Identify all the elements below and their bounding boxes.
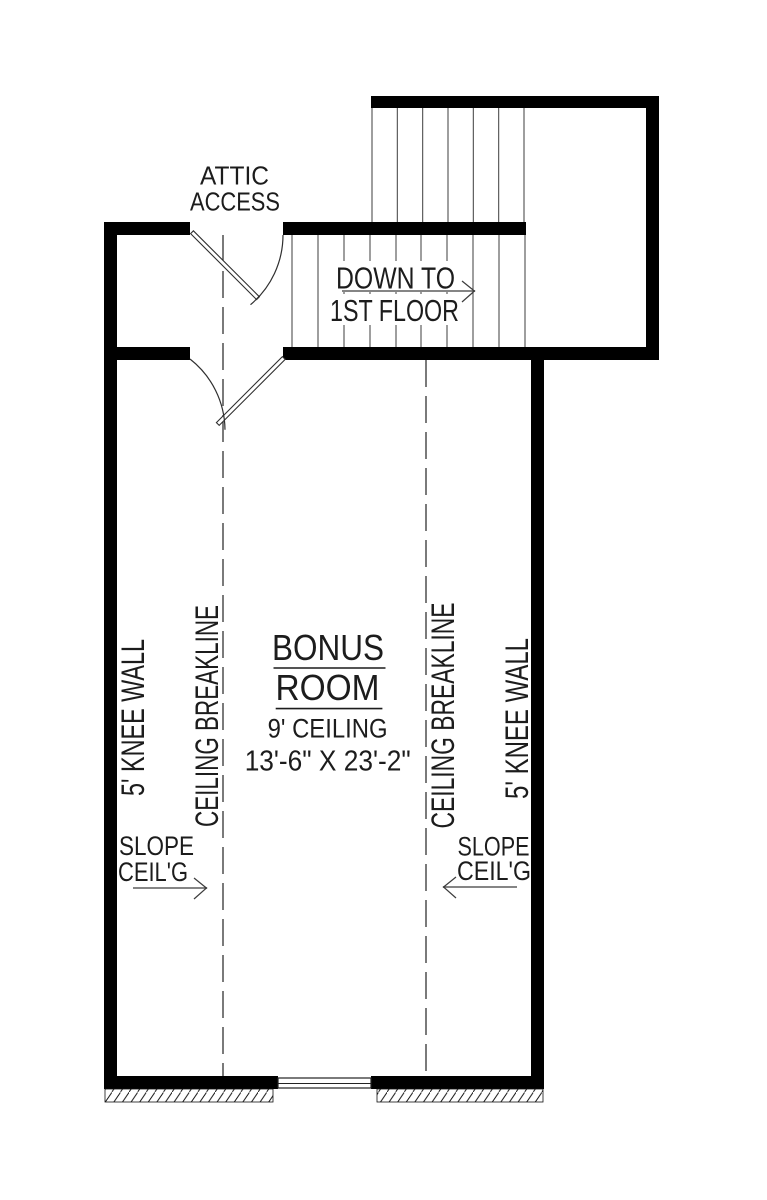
svg-text:1ST FLOOR: 1ST FLOOR — [330, 293, 459, 328]
svg-text:5' KNEE WALL: 5' KNEE WALL — [115, 639, 151, 796]
svg-text:5' KNEE WALL: 5' KNEE WALL — [499, 638, 535, 799]
svg-text:13'-6" X 23'-2": 13'-6" X 23'-2" — [245, 746, 411, 778]
svg-text:9' CEILING: 9' CEILING — [268, 714, 388, 744]
svg-text:ROOM: ROOM — [276, 667, 380, 708]
svg-text:CEIL'G: CEIL'G — [118, 857, 188, 887]
svg-text:CEIL'G: CEIL'G — [457, 856, 531, 886]
svg-text:ACCESS: ACCESS — [190, 187, 280, 217]
svg-text:CEILING BREAKLINE: CEILING BREAKLINE — [425, 603, 461, 829]
svg-text:DOWN TO: DOWN TO — [336, 261, 455, 296]
svg-text:BONUS: BONUS — [272, 627, 384, 668]
svg-text:CEILING BREAKLINE: CEILING BREAKLINE — [189, 605, 225, 827]
